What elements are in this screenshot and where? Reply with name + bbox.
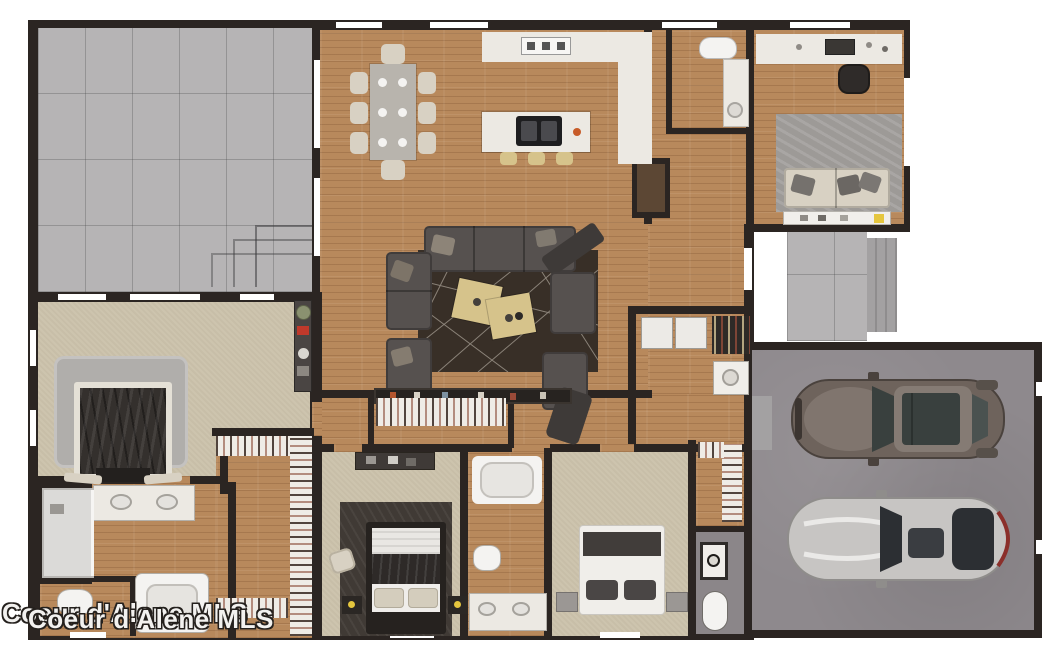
bed3-nightstand: [666, 592, 688, 612]
dining-chair: [350, 132, 368, 154]
dining-chair: [418, 132, 436, 154]
utility-sink: [722, 369, 739, 386]
master-bed-footboard: [96, 468, 150, 482]
wall-mudroom-left: [628, 306, 636, 452]
hall-sink: [512, 602, 530, 616]
office-console-items: [800, 215, 808, 221]
bed3-pillow: [624, 580, 656, 600]
bed2-desk-items: [366, 456, 376, 464]
powder-sink: [727, 102, 743, 118]
dining-chair: [418, 102, 436, 124]
shower-glass: [91, 490, 94, 576]
master-bed-duvet: [80, 388, 166, 474]
bed3-blanket-band: [583, 532, 661, 556]
window-master-top-1: [58, 294, 106, 300]
washer: [642, 318, 672, 348]
window-master-left-1: [30, 330, 36, 366]
closet3-shelf: [722, 444, 742, 522]
hall-closet-shelf: [376, 398, 506, 426]
window-garage-1: [1036, 382, 1042, 396]
dryer: [676, 318, 706, 348]
dining-plates: [378, 78, 387, 87]
island-stool: [528, 152, 545, 165]
bath3-sink: [707, 554, 720, 567]
wall-office-left: [746, 20, 754, 232]
island-stool: [500, 152, 517, 165]
coffee-table: [486, 292, 536, 339]
window-office-top: [790, 22, 850, 28]
dining-chair: [381, 44, 405, 64]
watermark-copy-2: Coeur d'Alene MLS: [28, 604, 274, 635]
hall-sink: [478, 602, 496, 616]
master-sink: [110, 494, 132, 510]
master-sink: [156, 494, 178, 510]
entry-door-gap: [744, 248, 752, 290]
sofa-chaise-right: [550, 272, 596, 334]
porch-steps: [867, 238, 897, 332]
mudroom-shoe-shelf: [712, 316, 750, 354]
sofa-pillow: [535, 228, 557, 247]
wall-mudroom-top: [628, 306, 752, 314]
island-decor-bowl: [573, 128, 581, 136]
window-top-1: [336, 22, 382, 28]
cooktop-burners: [527, 42, 535, 50]
dining-chair: [381, 160, 405, 180]
entry-porch: [787, 228, 867, 341]
door-gap-bed2: [334, 444, 362, 452]
wall-bed3-right: [688, 440, 696, 638]
closet-shelf-right: [290, 436, 312, 636]
bed3-nightstand: [556, 592, 578, 612]
bed3-pillow: [586, 580, 618, 600]
bed2-duvet-fold: [372, 528, 440, 554]
window-top-3: [662, 22, 717, 28]
wall-closet3-bath3: [694, 526, 746, 532]
window-garage-2: [1036, 540, 1042, 554]
dresser-plant: [297, 306, 310, 319]
kitchen-counter-right: [618, 32, 652, 164]
dining-table: [370, 64, 416, 160]
hall-toilet: [474, 546, 500, 570]
dining-chair: [418, 72, 436, 94]
bed2-lamp: [348, 601, 355, 608]
window-master-top-2: [130, 294, 200, 300]
bed2-blanket: [372, 554, 440, 584]
bed2-pillow: [374, 588, 404, 608]
window-office-right: [904, 78, 910, 166]
patio-steps: [255, 225, 314, 292]
hall-tub-basin: [480, 462, 534, 498]
coffee-table-decor: [473, 298, 481, 306]
closet3-shelf-top: [698, 442, 724, 458]
shower-head: [50, 504, 64, 514]
door-gap-bed3: [600, 444, 634, 452]
patio-door-1: [314, 60, 320, 148]
window-top-2: [430, 22, 488, 28]
master-shower: [42, 488, 94, 578]
dresser-box: [297, 366, 309, 376]
window-master-left-2: [30, 410, 36, 446]
island-sink-basins: [521, 121, 537, 141]
wall-powder-bottom: [666, 128, 752, 134]
bed2-nightstand: [448, 596, 468, 614]
office-chair: [840, 66, 868, 92]
dining-chair: [350, 72, 368, 94]
master-vanity: [94, 486, 194, 520]
powder-toilet: [700, 38, 736, 58]
island-stool: [556, 152, 573, 165]
car-suv-top: [788, 370, 1010, 470]
office-console-book: [874, 214, 884, 223]
pantry-interior: [637, 164, 665, 212]
patio-door-2: [314, 178, 320, 256]
window-master-top-3: [240, 294, 274, 300]
wall-powder-left: [666, 30, 672, 132]
bath3-toilet: [703, 592, 727, 630]
office-laptop: [826, 40, 854, 54]
office-desk-items: [796, 44, 802, 50]
floor-plan: Coeur d'Alene MLS Coeur d'Alene MLS: [0, 0, 1063, 645]
window-bottom-3: [600, 632, 640, 638]
dresser-book-red: [297, 326, 309, 335]
dresser-bowl: [298, 348, 309, 359]
dining-chair: [350, 102, 368, 124]
car-sedan-top: [784, 486, 1014, 592]
wall-office-bottom: [746, 224, 910, 232]
wall-master-hall: [312, 292, 322, 638]
patio-step-line: [211, 253, 316, 287]
bed2-pillow: [408, 588, 438, 608]
